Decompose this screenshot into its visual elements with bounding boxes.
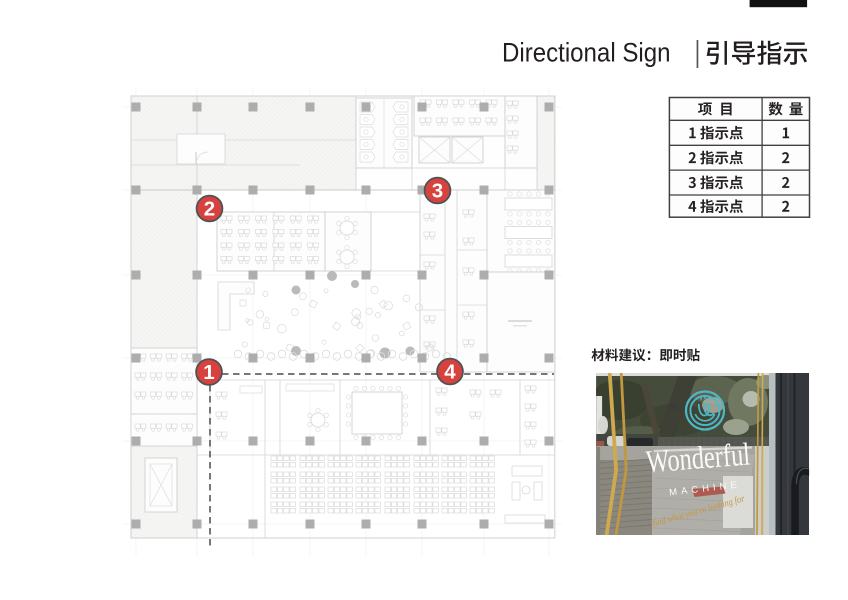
svg-text:Directional Sign: Directional Sign xyxy=(502,38,671,68)
svg-text:3: 3 xyxy=(432,179,443,202)
svg-text:2: 2 xyxy=(204,197,215,220)
svg-text:1: 1 xyxy=(203,361,214,384)
svg-text:4: 4 xyxy=(444,360,456,383)
